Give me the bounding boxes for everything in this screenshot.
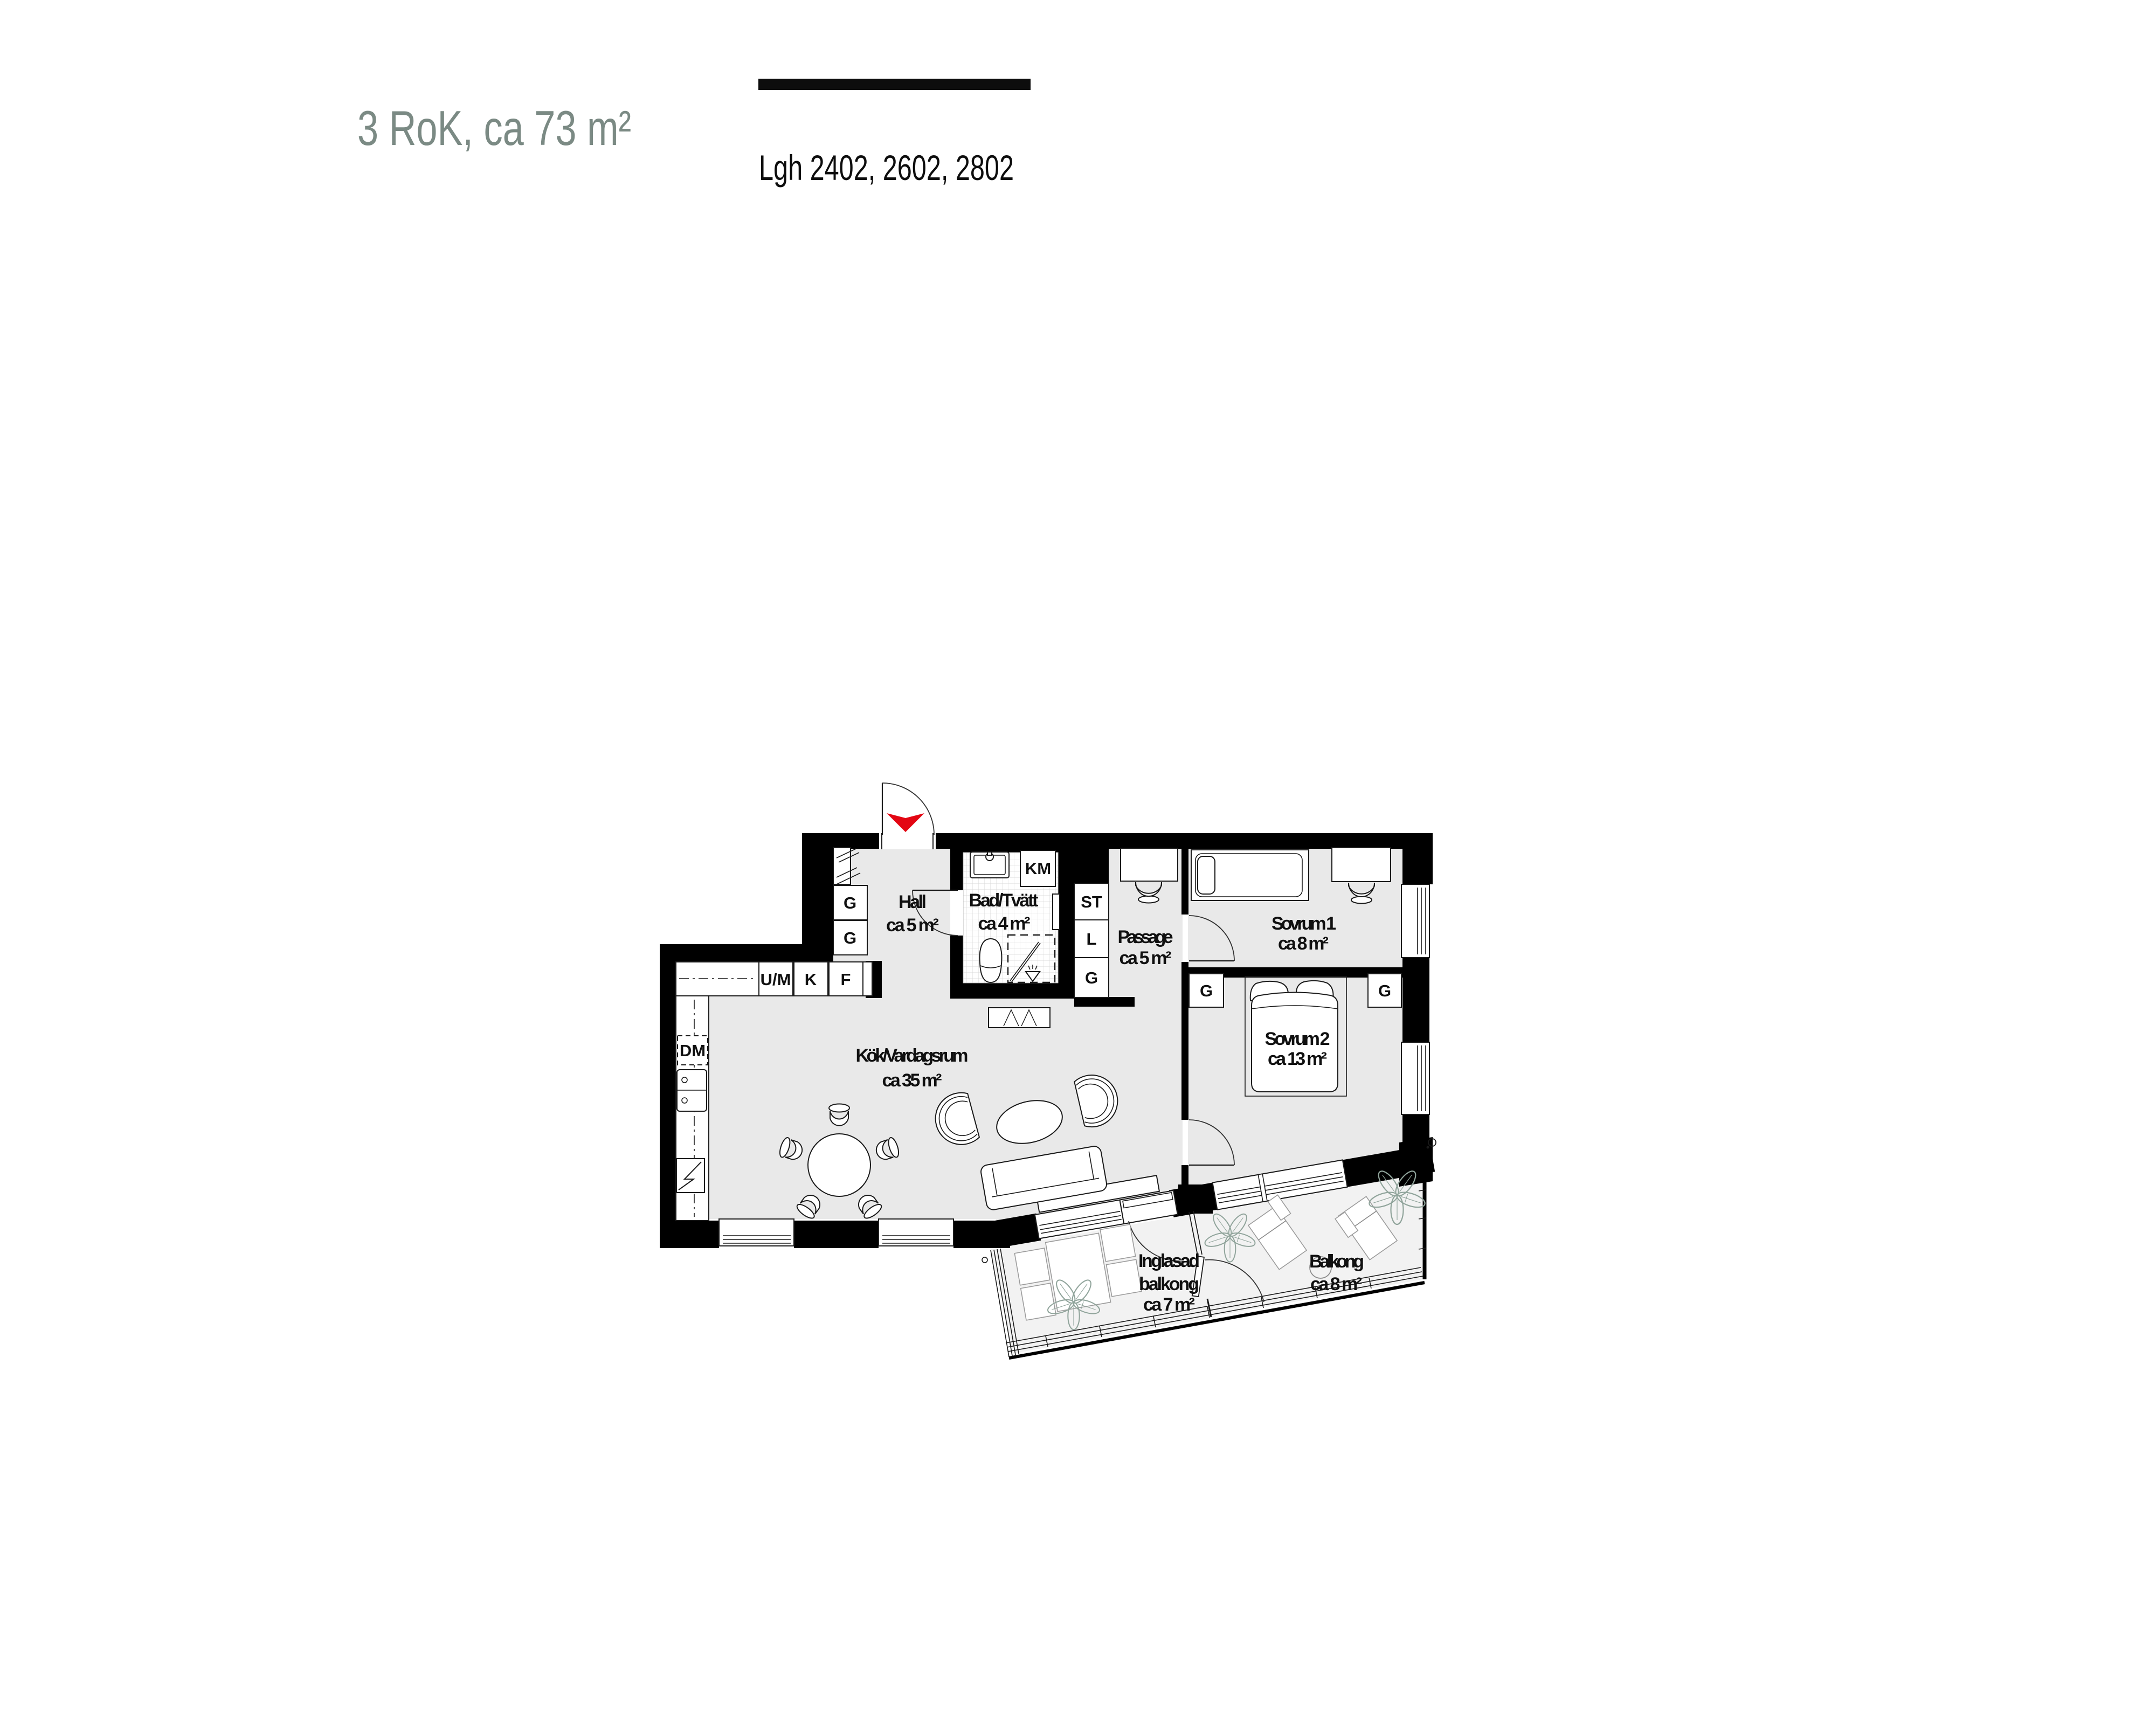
svg-text:ca 13 m²: ca 13 m² [1268, 1049, 1327, 1069]
svg-text:Hall: Hall [899, 892, 927, 912]
svg-text:G: G [844, 929, 856, 947]
svg-text:K: K [805, 970, 817, 989]
svg-text:Kök/Vardagsrum: Kök/Vardagsrum [856, 1045, 969, 1066]
svg-text:ca 35 m²: ca 35 m² [882, 1070, 942, 1091]
svg-text:G: G [1200, 981, 1213, 1000]
svg-text:Sovrum 2: Sovrum 2 [1265, 1029, 1330, 1049]
svg-text:DM: DM [680, 1041, 706, 1060]
svg-text:ca 4 m²: ca 4 m² [978, 913, 1031, 934]
svg-text:Inglasad: Inglasad [1138, 1251, 1200, 1271]
svg-text:Bad/Tvätt: Bad/Tvätt [969, 890, 1039, 911]
svg-text:balkong: balkong [1139, 1274, 1199, 1294]
svg-text:Balkong: Balkong [1309, 1251, 1364, 1272]
svg-text:Sovrum 1: Sovrum 1 [1272, 913, 1336, 934]
svg-text:ca 8 m²: ca 8 m² [1278, 933, 1329, 954]
svg-text:ca 7 m²: ca 7 m² [1143, 1294, 1195, 1315]
svg-text:ca 5 m²: ca 5 m² [886, 915, 939, 936]
svg-text:ca 5 m²: ca 5 m² [1120, 948, 1172, 968]
svg-text:G: G [1085, 968, 1098, 987]
svg-text:Passage: Passage [1118, 927, 1173, 947]
svg-text:F: F [841, 970, 851, 989]
svg-text:G: G [844, 893, 856, 912]
svg-text:3 RoK, ca 73 m²: 3 RoK, ca 73 m² [357, 101, 631, 156]
svg-text:U/M: U/M [761, 970, 791, 989]
svg-text:L: L [1087, 930, 1097, 948]
svg-text:ca 8 m²: ca 8 m² [1310, 1274, 1362, 1294]
svg-text:G: G [1378, 981, 1391, 1000]
svg-text:Lgh 2402, 2602, 2802: Lgh 2402, 2602, 2802 [759, 148, 1014, 188]
svg-text:KM: KM [1025, 859, 1051, 878]
svg-text:ST: ST [1081, 892, 1102, 911]
